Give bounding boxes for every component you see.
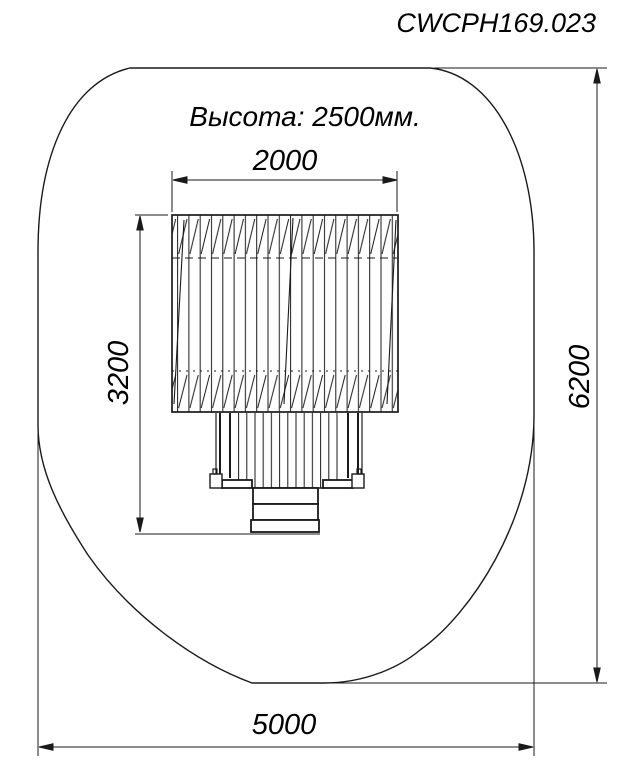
- stair-step-2: [253, 504, 318, 520]
- deck-corner-block-left: [210, 474, 222, 488]
- dim-label-bottom-width: 5000: [224, 711, 344, 740]
- dim-label-left-height: 3200: [105, 313, 135, 433]
- arrowhead-top: [594, 69, 600, 83]
- dimension-top-width: [172, 171, 397, 212]
- arrowhead-left: [39, 744, 53, 750]
- arrowhead-bottom: [137, 518, 143, 532]
- deck-bracket-right: [323, 480, 353, 488]
- platform-deck: [210, 413, 364, 488]
- stairs: [251, 488, 319, 532]
- stair-step-1: [253, 488, 318, 504]
- dim-label-top-width: 2000: [225, 147, 345, 176]
- stair-step-3: [251, 520, 319, 532]
- dim-label-right-height: 6200: [566, 317, 596, 437]
- deck-corner-block-right: [352, 474, 364, 488]
- drawing-title: CWCPH169.023: [340, 10, 596, 37]
- arrowhead-right: [383, 177, 397, 183]
- roof-upper-shingle-hatch: [172, 215, 398, 258]
- arrowhead-left: [173, 177, 187, 183]
- roof-plan: [172, 215, 398, 412]
- arrowhead-top: [137, 216, 143, 230]
- deck-bracket-left: [222, 480, 252, 488]
- deck-plank-hatch: [238, 413, 340, 488]
- arrowhead-bottom: [594, 668, 600, 682]
- arrowhead-right: [519, 744, 533, 750]
- drawing-sheet: CWCPH169.023 Высота: 2500мм. 2000 3200 6…: [0, 0, 639, 770]
- height-annotation: Высота: 2500мм.: [150, 103, 460, 131]
